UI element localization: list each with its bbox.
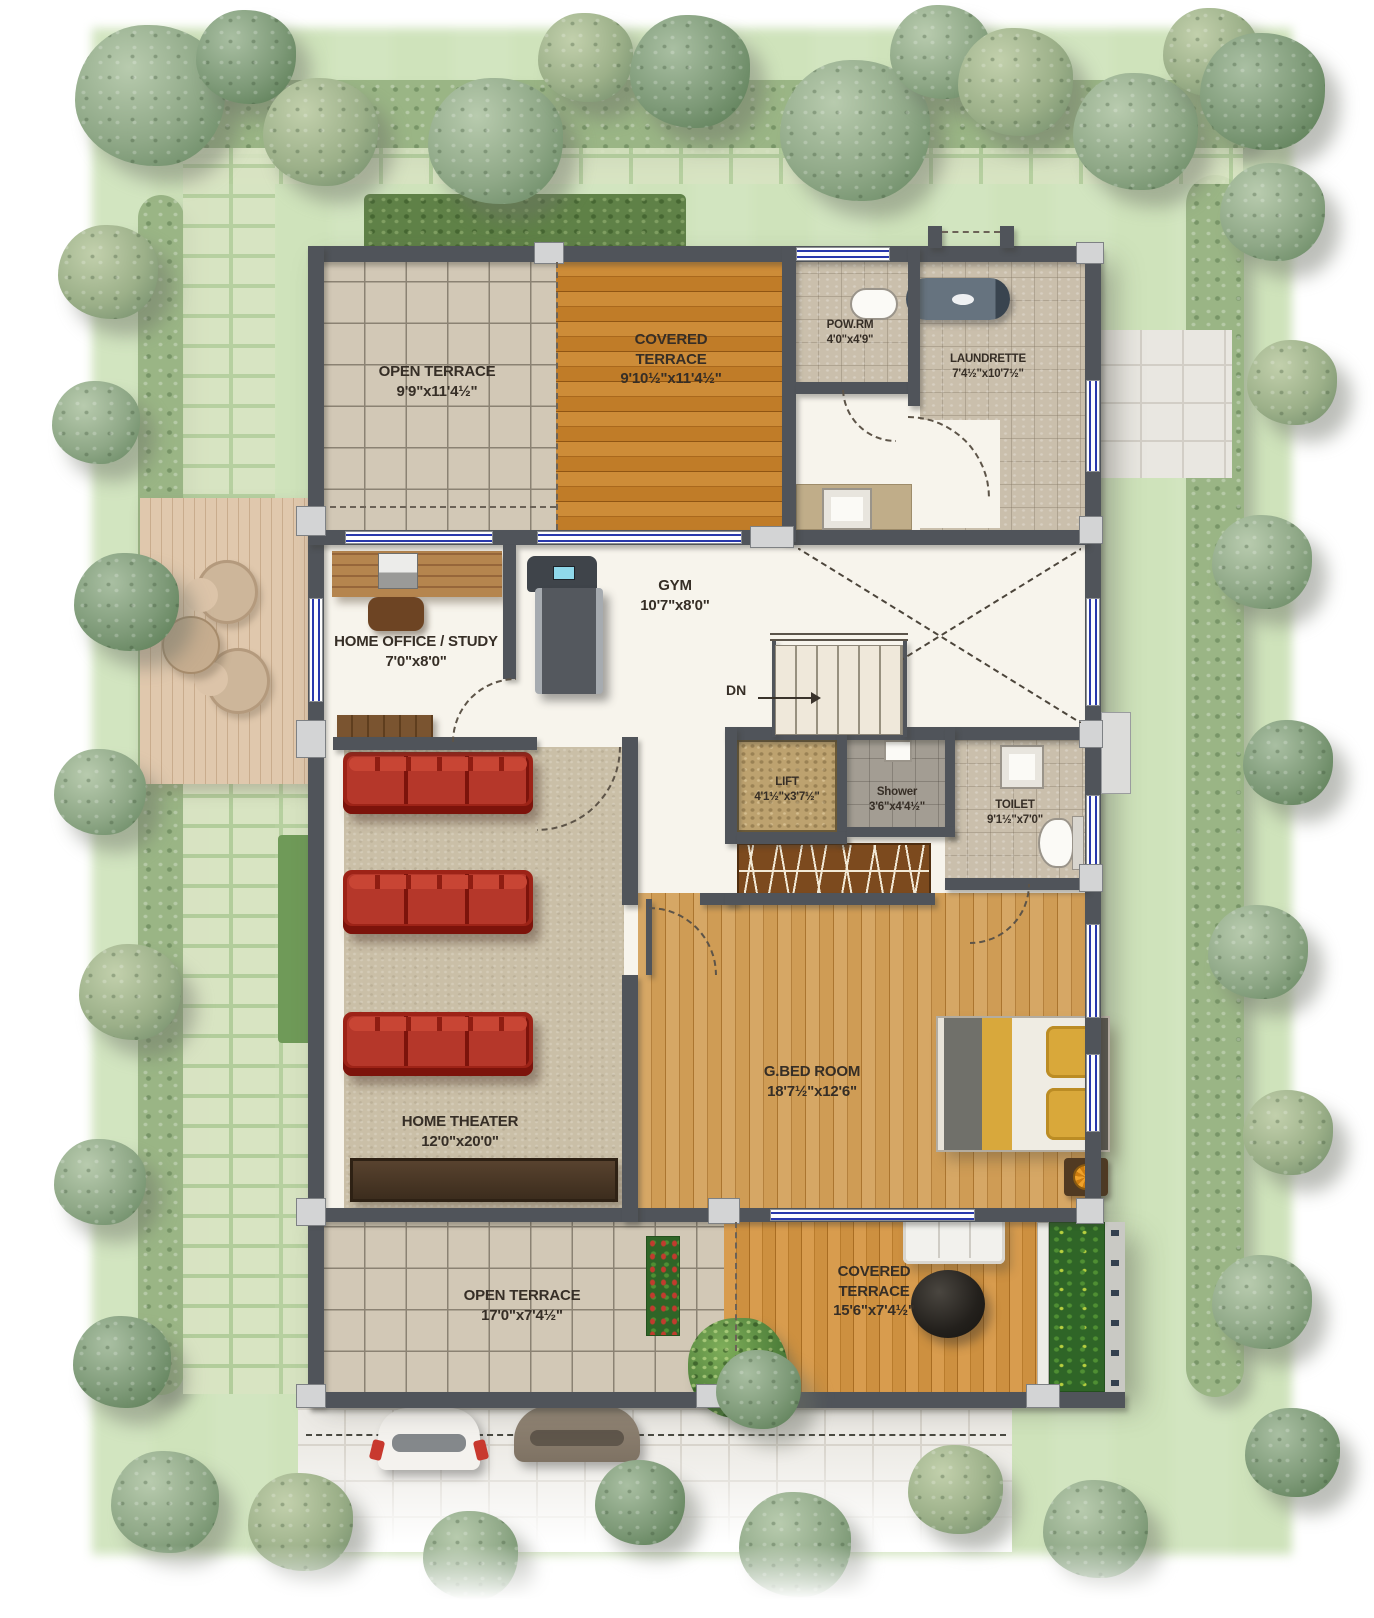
room-name: COVERED TERRACE [612, 330, 730, 369]
label-toilet: TOILET 9'1½"x7'0" [955, 798, 1075, 828]
room-dim: 4'1½"x3'7½" [737, 790, 837, 805]
path-top [183, 148, 1243, 184]
pillar [1026, 1384, 1060, 1408]
room-name: OPEN TERRACE [437, 1286, 607, 1306]
window [1086, 598, 1100, 706]
room-dim: 9'1½"x7'0" [955, 813, 1075, 828]
bed [938, 1018, 1108, 1150]
wall-notch [1000, 226, 1014, 248]
pillar [296, 1384, 326, 1408]
hedge-left [138, 195, 184, 1395]
label-shower: Shower 3'6"x4'4½" [851, 785, 943, 815]
room-name: HOME OFFICE / STUDY [330, 632, 502, 652]
stair-landing-rail [770, 633, 908, 641]
car-windshield [530, 1430, 624, 1446]
window [1086, 795, 1100, 867]
planter-edge-gray [1105, 1222, 1125, 1392]
pillar [708, 1198, 740, 1224]
room-name: OPEN TERRACE [352, 362, 522, 382]
planter-right [1049, 1222, 1105, 1392]
label-g-bed-room: G.BED ROOM 18'7½"x12'6" [727, 1062, 897, 1101]
terrace-edge-dashed [330, 506, 556, 508]
pillar [1076, 1198, 1104, 1224]
stair-direction-arrow [758, 697, 812, 699]
wall [308, 246, 324, 1406]
room-name: LAUNDRETTE [918, 352, 1058, 367]
ironing-board [906, 278, 1010, 320]
window [1086, 924, 1100, 1018]
wall [622, 975, 638, 1222]
ac-ledge [1101, 712, 1131, 794]
room-dim: 9'10½"x11'4½" [612, 369, 730, 389]
theater-sofa-row [343, 1012, 533, 1076]
wall [622, 737, 638, 905]
label-laundrette: LAUNDRETTE 7'4½"x10'7½" [918, 352, 1058, 382]
terrace-divider-dashed [556, 262, 558, 530]
room-dim: 17'0"x7'4½" [437, 1306, 607, 1326]
shower-head [884, 740, 912, 762]
theater-sofa-row [343, 870, 533, 934]
window [1086, 380, 1100, 472]
wall [782, 246, 796, 542]
window [796, 247, 890, 261]
car-gray [514, 1406, 640, 1462]
wardrobe [737, 843, 931, 897]
site-plan: DN OPEN TERRACE 9'9"x11'4½" COVERED TERR… [0, 0, 1374, 1618]
pillar [1076, 242, 1104, 264]
path-right [1100, 330, 1232, 478]
room-dim: 3'6"x4'4½" [851, 800, 943, 815]
label-pow-rm: POW.RM 4'0"x4'9" [800, 318, 900, 348]
toilet-washbasin [1000, 745, 1044, 789]
room-dim: 4'0"x4'9" [800, 333, 900, 348]
treadmill-belt [535, 588, 603, 694]
wall [908, 246, 920, 406]
pillar [1079, 720, 1103, 748]
wall [737, 832, 847, 844]
powder-room-basin [850, 288, 898, 320]
room-dim: 7'4½"x10'7½" [918, 367, 1058, 382]
wall-notch [928, 226, 942, 248]
deck-table [162, 616, 220, 674]
label-covered-terrace-bottom: COVERED TERRACE 15'6"x7'4½" [815, 1262, 933, 1321]
room-name: POW.RM [800, 318, 900, 333]
room-name: LIFT [737, 775, 837, 790]
room-covered-terrace-top [556, 262, 782, 530]
staircase [775, 645, 903, 735]
treadmill-screen [553, 566, 575, 580]
pillar [534, 242, 564, 264]
theater-cabinet [337, 715, 433, 737]
wall [308, 246, 1087, 262]
theater-screen-console [350, 1158, 618, 1202]
theater-sofa-row [343, 752, 533, 814]
deck-chair-seat [184, 578, 218, 612]
window [345, 531, 493, 544]
window [537, 531, 742, 544]
planter-strip [646, 1236, 680, 1336]
room-name: G.BED ROOM [727, 1062, 897, 1082]
pillar [296, 506, 326, 536]
dashed-opening [942, 231, 1000, 233]
car-windshield [392, 1434, 466, 1452]
pillar [1079, 864, 1103, 892]
wall [725, 893, 935, 905]
deck-chair [196, 560, 258, 624]
pillar [296, 1198, 326, 1226]
label-open-terrace-bottom: OPEN TERRACE 17'0"x7'4½" [437, 1286, 607, 1325]
room-dim: 10'7"x8'0" [620, 596, 730, 616]
pillar [696, 1384, 726, 1408]
stairs-dn-label: DN [726, 682, 746, 698]
pillar [750, 526, 794, 548]
label-home-theater: HOME THEATER 12'0"x20'0" [375, 1112, 545, 1151]
room-name: HOME THEATER [375, 1112, 545, 1132]
window [770, 1209, 975, 1221]
room-dim: 9'9"x11'4½" [352, 382, 522, 402]
room-name: GYM [620, 576, 730, 596]
room-name: TOILET [955, 798, 1075, 813]
car-white [378, 1408, 480, 1470]
office-chair [368, 597, 424, 631]
room-dim: 18'7½"x12'6" [727, 1082, 897, 1102]
terrace-sofa [903, 1216, 1005, 1264]
wall [725, 727, 737, 844]
window [1086, 1054, 1100, 1132]
room-name: COVERED TERRACE [815, 1262, 933, 1301]
pillar [1079, 516, 1103, 544]
wall [837, 727, 847, 844]
wall [503, 545, 516, 679]
window [309, 598, 323, 702]
label-lift: LIFT 4'1½"x3'7½" [737, 775, 837, 805]
pillar [296, 720, 326, 758]
wall [945, 727, 955, 837]
room-name: Shower [851, 785, 943, 800]
label-gym: GYM 10'7"x8'0" [620, 576, 730, 615]
label-home-office: HOME OFFICE / STUDY 7'0"x8'0" [330, 632, 502, 671]
label-covered-terrace-top: COVERED TERRACE 9'10½"x11'4½" [612, 330, 730, 389]
label-open-terrace-top: OPEN TERRACE 9'9"x11'4½" [352, 362, 522, 401]
room-dim: 7'0"x8'0" [330, 652, 502, 672]
terrace-divider-dashed [735, 1222, 737, 1392]
room-dim: 15'6"x7'4½" [815, 1301, 933, 1321]
wall [847, 827, 955, 837]
treadmill [527, 556, 597, 696]
laptop [378, 553, 418, 589]
room-dim: 12'0"x20'0" [375, 1132, 545, 1152]
hedge-top [175, 80, 1255, 154]
planter-edge-white [1037, 1222, 1049, 1392]
hall-washbasin [822, 488, 872, 530]
